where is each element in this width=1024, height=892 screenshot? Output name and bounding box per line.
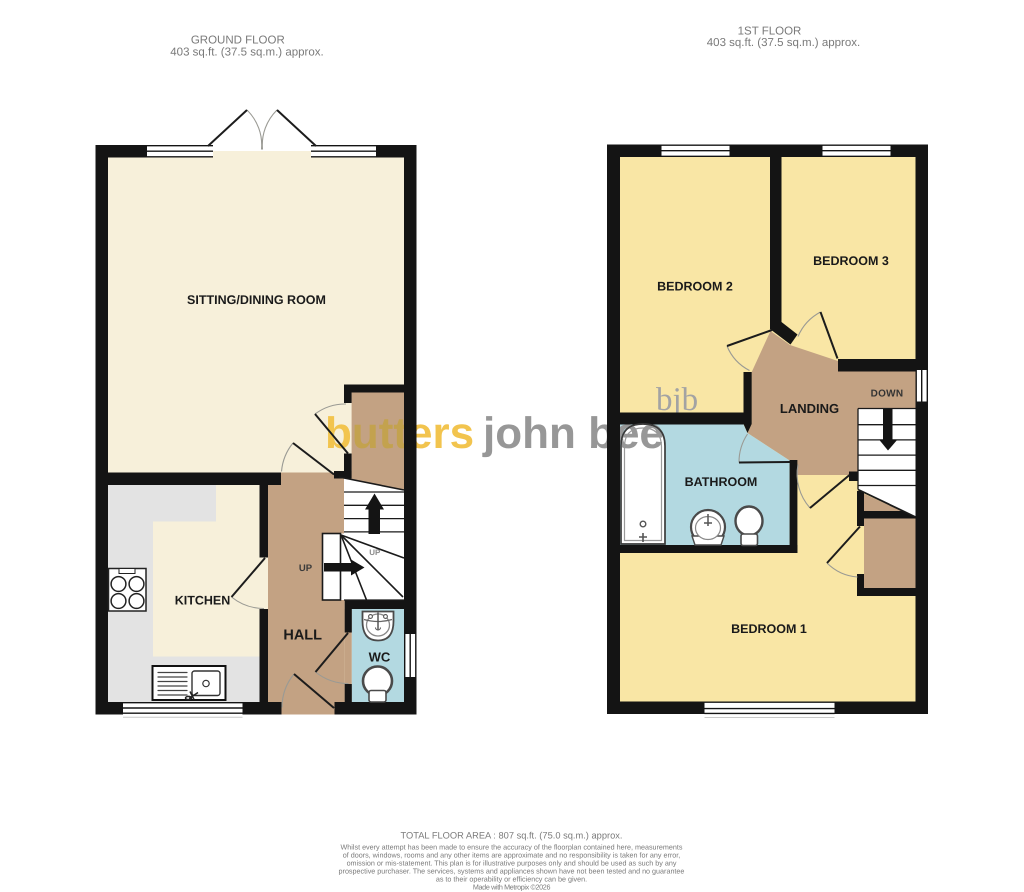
svg-text:BEDROOM 2: BEDROOM 2 — [657, 280, 733, 294]
svg-text:DOWN: DOWN — [871, 389, 904, 400]
svg-text:BEDROOM 1: BEDROOM 1 — [731, 622, 807, 636]
svg-text:HALL: HALL — [283, 628, 322, 644]
svg-text:WC: WC — [369, 650, 391, 665]
svg-text:Made with Metropix ©2026: Made with Metropix ©2026 — [473, 883, 551, 892]
svg-text:BEDROOM 3: BEDROOM 3 — [813, 254, 889, 268]
svg-text:UP: UP — [299, 563, 313, 574]
svg-text:GROUND FLOOR: GROUND FLOOR — [191, 35, 285, 47]
svg-text:1ST FLOOR: 1ST FLOOR — [738, 26, 802, 38]
svg-text:bjb: bjb — [656, 382, 698, 418]
svg-text:UP: UP — [369, 548, 381, 557]
svg-text:403 sq.ft. (37.5 sq.m.) approx: 403 sq.ft. (37.5 sq.m.) approx. — [707, 37, 860, 49]
svg-text:butters: butters — [325, 409, 474, 458]
svg-text:LANDING: LANDING — [780, 401, 839, 416]
svg-text:john bee: john bee — [482, 409, 664, 458]
svg-text:403 sq.ft. (37.5 sq.m.) approx: 403 sq.ft. (37.5 sq.m.) approx. — [170, 47, 323, 59]
svg-text:SITTING/DINING ROOM: SITTING/DINING ROOM — [187, 293, 326, 307]
svg-text:TOTAL FLOOR AREA : 807 sq.ft.: TOTAL FLOOR AREA : 807 sq.ft. (75.0 sq.m… — [400, 831, 622, 841]
svg-text:BATHROOM: BATHROOM — [685, 475, 758, 489]
svg-text:KITCHEN: KITCHEN — [175, 594, 231, 608]
